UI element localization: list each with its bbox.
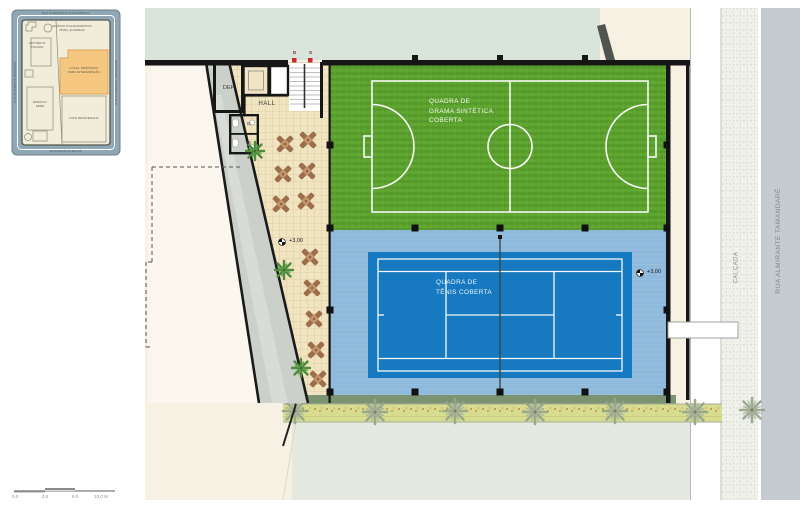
side-gate [668,322,738,338]
room-label-hall: HALL [252,100,282,109]
plan-drawing [0,0,800,509]
grass-court [330,62,668,230]
front-lawn [292,420,722,500]
room-label-is-1: IS [242,121,256,127]
room-label-is-2: IS [242,140,256,146]
scale-tick-1: 3,0 [35,494,55,501]
scale-tick-3: 10,0 M [85,494,117,501]
stair-label-up: S [306,50,315,57]
floor-plan-canvas: GINÁSIO POLIESPORTIVO NÍVEL QUADRAS VEST… [0,0,800,509]
shaft-room [270,66,288,95]
room-label-dep: DEP. [218,84,240,92]
scale-tick-0: 0,0 [5,494,25,501]
inset-street-right: RUA ALMIRANTE TAMANDARÉ [114,37,118,127]
side-setback [690,8,722,500]
level-label-court: +3,00 [647,268,661,276]
inset-label-lot: LOTE RESIDENCIAL [58,116,110,120]
grass-court-title: QUADRA DE GRAMA SINTÉTICA COBERTA [429,97,529,126]
tennis-court-title: QUADRA DE TÊNIS COBERTA [436,278,536,297]
inset-street-bottom: RUA ESTÁCIO DE SÁ [16,149,116,153]
inset-street-top: RUA ALMIRANTE ALEXANDRINO [16,11,116,15]
inset-street-left: RUA ALMIRANTE BARROSO [13,37,17,127]
stair-down-marker [292,58,297,63]
site-plan [145,8,800,500]
level-label-terrace: +3,00 [289,237,303,245]
stairs [289,58,320,111]
street-label: RUA ALMIRANTE TAMANDARÉ [774,161,784,321]
scale-bar [14,488,115,492]
inset-label-site: LOCAL PROPOSTO PARA INTERVENÇÃO [58,66,110,74]
stair-up-marker [308,58,313,63]
inset-label-office: EDIFÍCIO SEDE [27,100,53,108]
tennis-court [330,230,668,395]
elevator [244,66,269,95]
scale-tick-2: 6,0 [65,494,85,501]
level-mark-court [637,270,644,277]
inset-label-changing: VESTIÁRIOS PISCINAS [24,42,50,49]
sidewalk-label: CALÇADA [733,218,742,318]
north-neighbour-area [145,8,600,60]
planting-strip [283,404,722,422]
stair-label-down: D [290,50,299,57]
inset-label-gym: GINÁSIO POLIESPORTIVO NÍVEL QUADRAS [40,24,104,32]
level-mark-terrace [279,239,286,246]
